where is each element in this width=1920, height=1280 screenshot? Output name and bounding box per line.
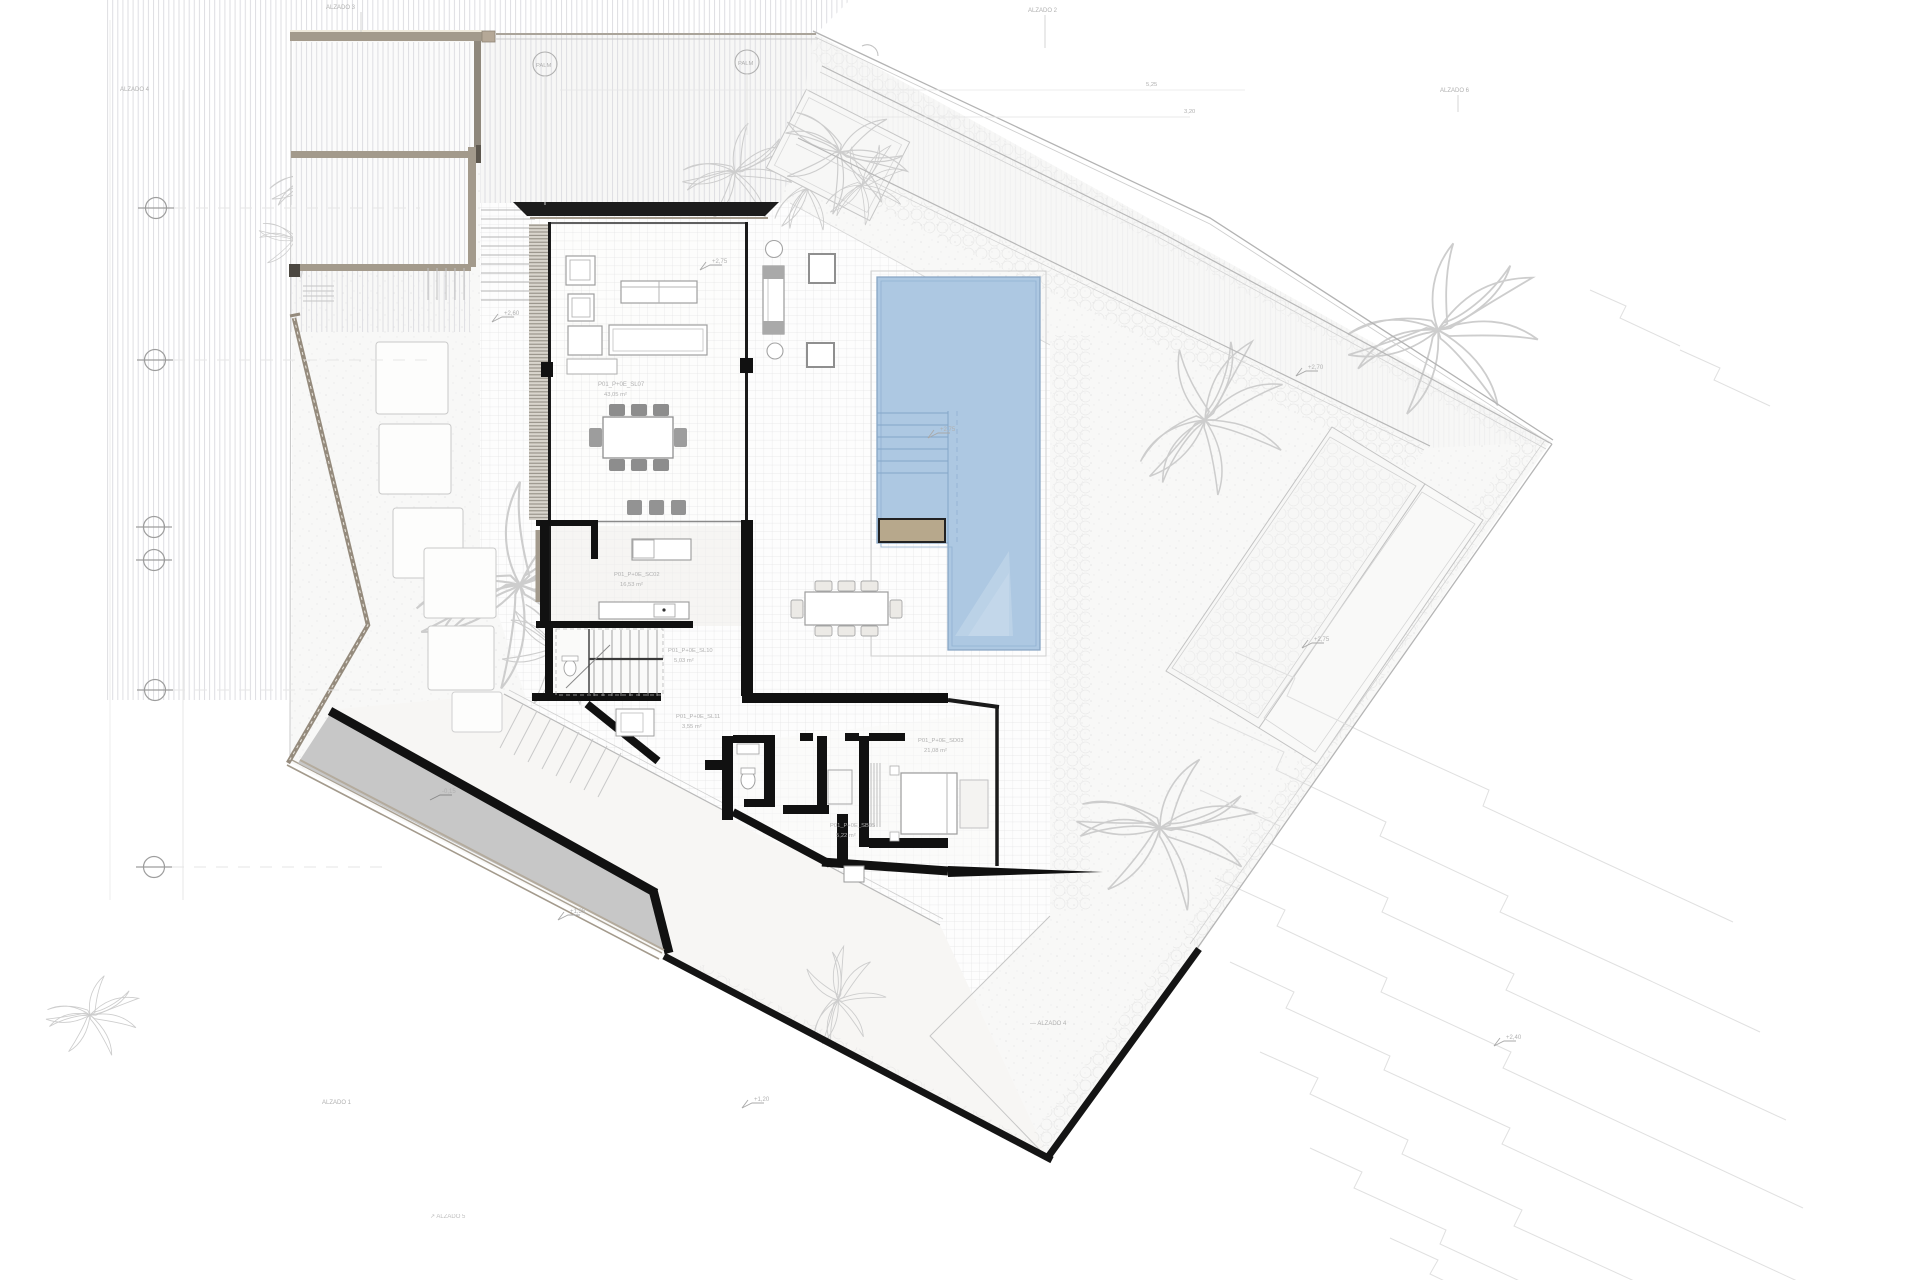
svg-text:5,22 m²: 5,22 m² (836, 833, 856, 839)
svg-text:+1,20: +1,20 (754, 1097, 770, 1103)
svg-text:P01_P+0E_SL10: P01_P+0E_SL10 (668, 648, 713, 654)
svg-text:PALM: PALM (738, 61, 754, 67)
svg-text:21,08 m²: 21,08 m² (924, 748, 947, 754)
svg-text:5,25: 5,25 (1146, 82, 1157, 88)
svg-text:+2,60: +2,60 (504, 311, 520, 317)
svg-text:43,05 m²: 43,05 m² (604, 392, 627, 398)
svg-text:P01_P+0E_SC02: P01_P+0E_SC02 (614, 572, 660, 578)
svg-text:↗ ALZADO 5: ↗ ALZADO 5 (430, 1214, 466, 1220)
svg-text:-0,15: -0,15 (442, 789, 456, 795)
svg-text:ALZADO 6: ALZADO 6 (1440, 88, 1470, 94)
svg-text:P01_P+0E_SB05: P01_P+0E_SB05 (830, 823, 875, 829)
svg-text:P01_P+0E_SL11: P01_P+0E_SL11 (676, 714, 720, 720)
svg-text:— ALZADO 4: — ALZADO 4 (1030, 1021, 1067, 1027)
svg-text:ALZADO 2: ALZADO 2 (1028, 8, 1058, 14)
svg-text:P01_P+0E_SL07: P01_P+0E_SL07 (598, 382, 645, 388)
svg-text:16,53 m²: 16,53 m² (620, 582, 643, 588)
svg-text:+2,75: +2,75 (1314, 637, 1330, 643)
svg-text:3,55 m²: 3,55 m² (682, 724, 702, 730)
svg-text:+2,40: +2,40 (1506, 1035, 1522, 1041)
svg-text:+2,75: +2,75 (940, 427, 956, 433)
svg-text:ALZADO 1: ALZADO 1 (322, 1100, 352, 1106)
svg-text:+2,70: +2,70 (1308, 365, 1324, 371)
svg-text:+1,35: +1,35 (570, 909, 586, 915)
svg-text:3,20: 3,20 (1184, 109, 1195, 115)
svg-text:P01_P+0E_SD03: P01_P+0E_SD03 (918, 738, 964, 744)
svg-text:ALZADO 4: ALZADO 4 (120, 87, 150, 93)
svg-text:5,03 m²: 5,03 m² (674, 658, 694, 664)
svg-text:+2,75: +2,75 (712, 259, 728, 265)
svg-text:ALZADO 3: ALZADO 3 (326, 5, 356, 11)
svg-text:PALM: PALM (536, 63, 552, 69)
